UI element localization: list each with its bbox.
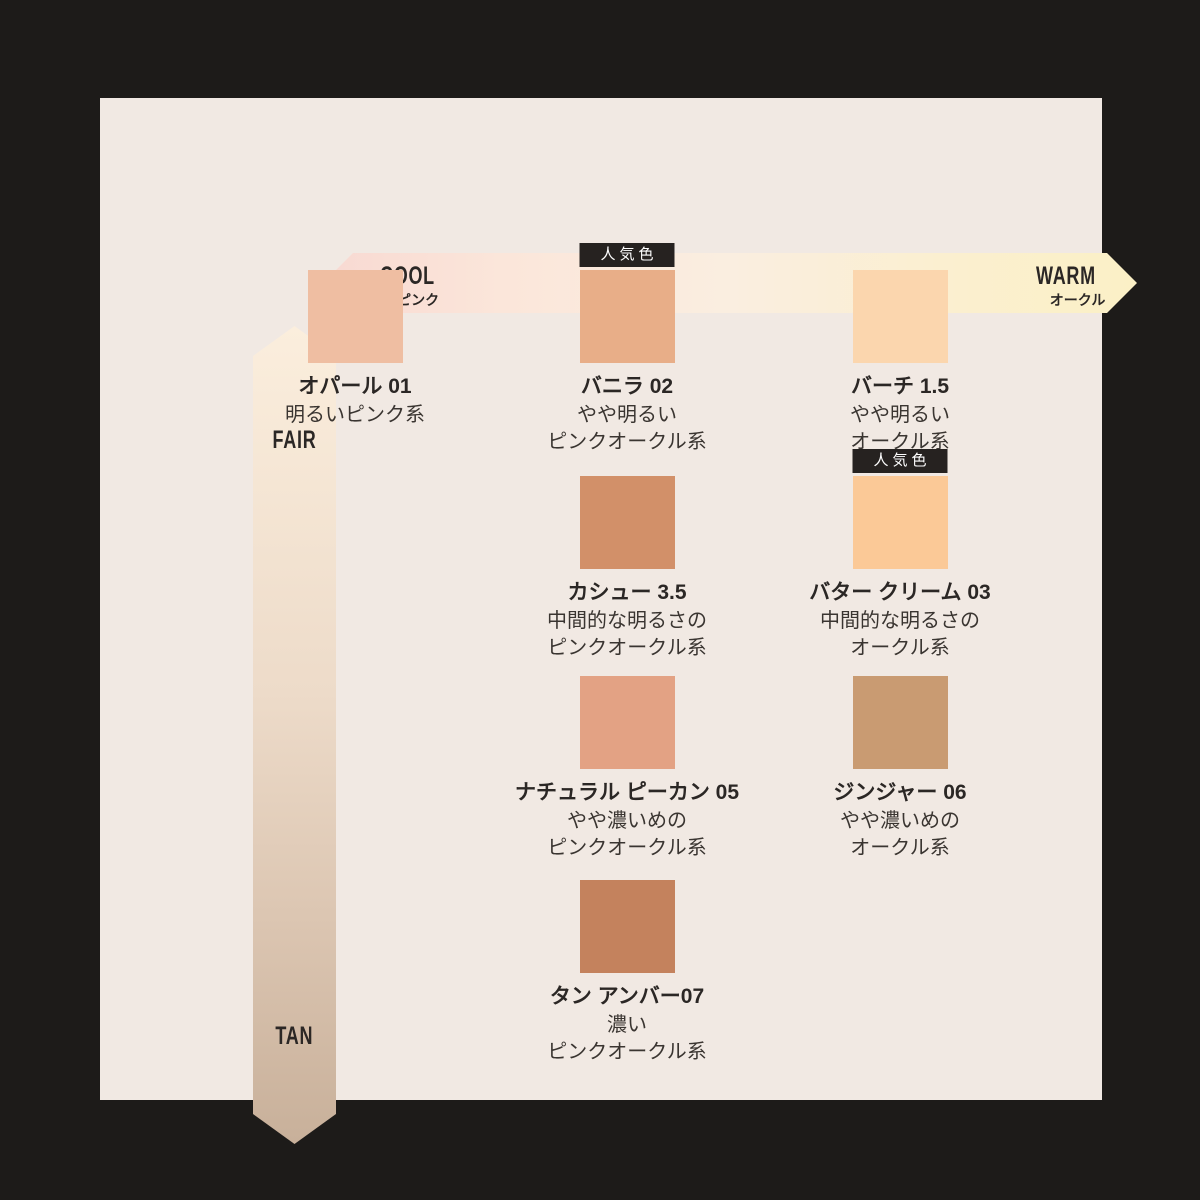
shade-desc-line: やや濃いめの: [467, 808, 787, 835]
shade-desc-line: 濃い: [467, 1012, 787, 1039]
shade-swatch: [580, 476, 675, 569]
shade-chart-stage: COOL ピンク WARM オークル FAIR TAN オパール 01明るいピン…: [0, 0, 1200, 1200]
shade-desc: 中間的な明るさのピンクオークル系: [467, 608, 787, 662]
shade-desc-line: やや濃いめの: [740, 808, 1060, 835]
shade-swatch: [308, 270, 403, 363]
shade-cell: 人気色バター クリーム 03中間的な明るさのオークル系: [740, 476, 1060, 662]
shade-cell: タン アンバー07濃いピンクオークル系: [467, 880, 787, 1066]
shade-desc: 濃いピンクオークル系: [467, 1012, 787, 1066]
shade-name: タン アンバー07: [467, 984, 787, 1009]
shade-cell: カシュー 3.5中間的な明るさのピンクオークル系: [467, 476, 787, 662]
shade-desc-line: 中間的な明るさの: [740, 608, 1060, 635]
shade-cell: 人気色バニラ 02やや明るいピンクオークル系: [467, 270, 787, 456]
tan-label: TAN: [253, 1024, 336, 1049]
shade-desc-line: ピンクオークル系: [467, 635, 787, 662]
shade-name: バター クリーム 03: [740, 580, 1060, 605]
shade-cell: ジンジャー 06やや濃いめのオークル系: [740, 676, 1060, 862]
shade-swatch: [580, 676, 675, 769]
shade-desc-line: やや明るい: [467, 402, 787, 429]
shade-desc-line: ピンクオークル系: [467, 835, 787, 862]
shade-desc: やや明るいピンクオークル系: [467, 402, 787, 456]
fair-label: FAIR: [253, 428, 336, 453]
shade-name: バーチ 1.5: [740, 374, 1060, 399]
shade-desc-line: ピンクオークル系: [467, 429, 787, 456]
shade-swatch: [853, 676, 948, 769]
shade-desc-line: 中間的な明るさの: [467, 608, 787, 635]
shade-name: バニラ 02: [467, 374, 787, 399]
shade-desc: やや濃いめのオークル系: [740, 808, 1060, 862]
tan-label-text: TAN: [276, 1024, 314, 1049]
shade-swatch: [853, 270, 948, 363]
shade-name: カシュー 3.5: [467, 580, 787, 605]
shade-desc-line: オークル系: [740, 835, 1060, 862]
shade-desc: やや濃いめのピンクオークル系: [467, 808, 787, 862]
shade-cell: ナチュラル ピーカン 05やや濃いめのピンクオークル系: [467, 676, 787, 862]
shade-desc: 中間的な明るさのオークル系: [740, 608, 1060, 662]
shade-desc-line: ピンクオークル系: [467, 1039, 787, 1066]
shade-swatch: [580, 880, 675, 973]
shade-chart-panel: COOL ピンク WARM オークル FAIR TAN オパール 01明るいピン…: [100, 98, 1102, 1100]
popular-badge: 人気色: [580, 243, 675, 267]
shade-swatch: [853, 476, 948, 569]
shade-desc-line: オークル系: [740, 635, 1060, 662]
shade-desc-line: やや明るい: [740, 402, 1060, 429]
shade-name: ジンジャー 06: [740, 780, 1060, 805]
shade-swatch: [580, 270, 675, 363]
popular-badge: 人気色: [853, 449, 948, 473]
shade-cell: バーチ 1.5やや明るいオークル系: [740, 270, 1060, 456]
shade-name: ナチュラル ピーカン 05: [467, 780, 787, 805]
fair-label-text: FAIR: [273, 428, 317, 453]
